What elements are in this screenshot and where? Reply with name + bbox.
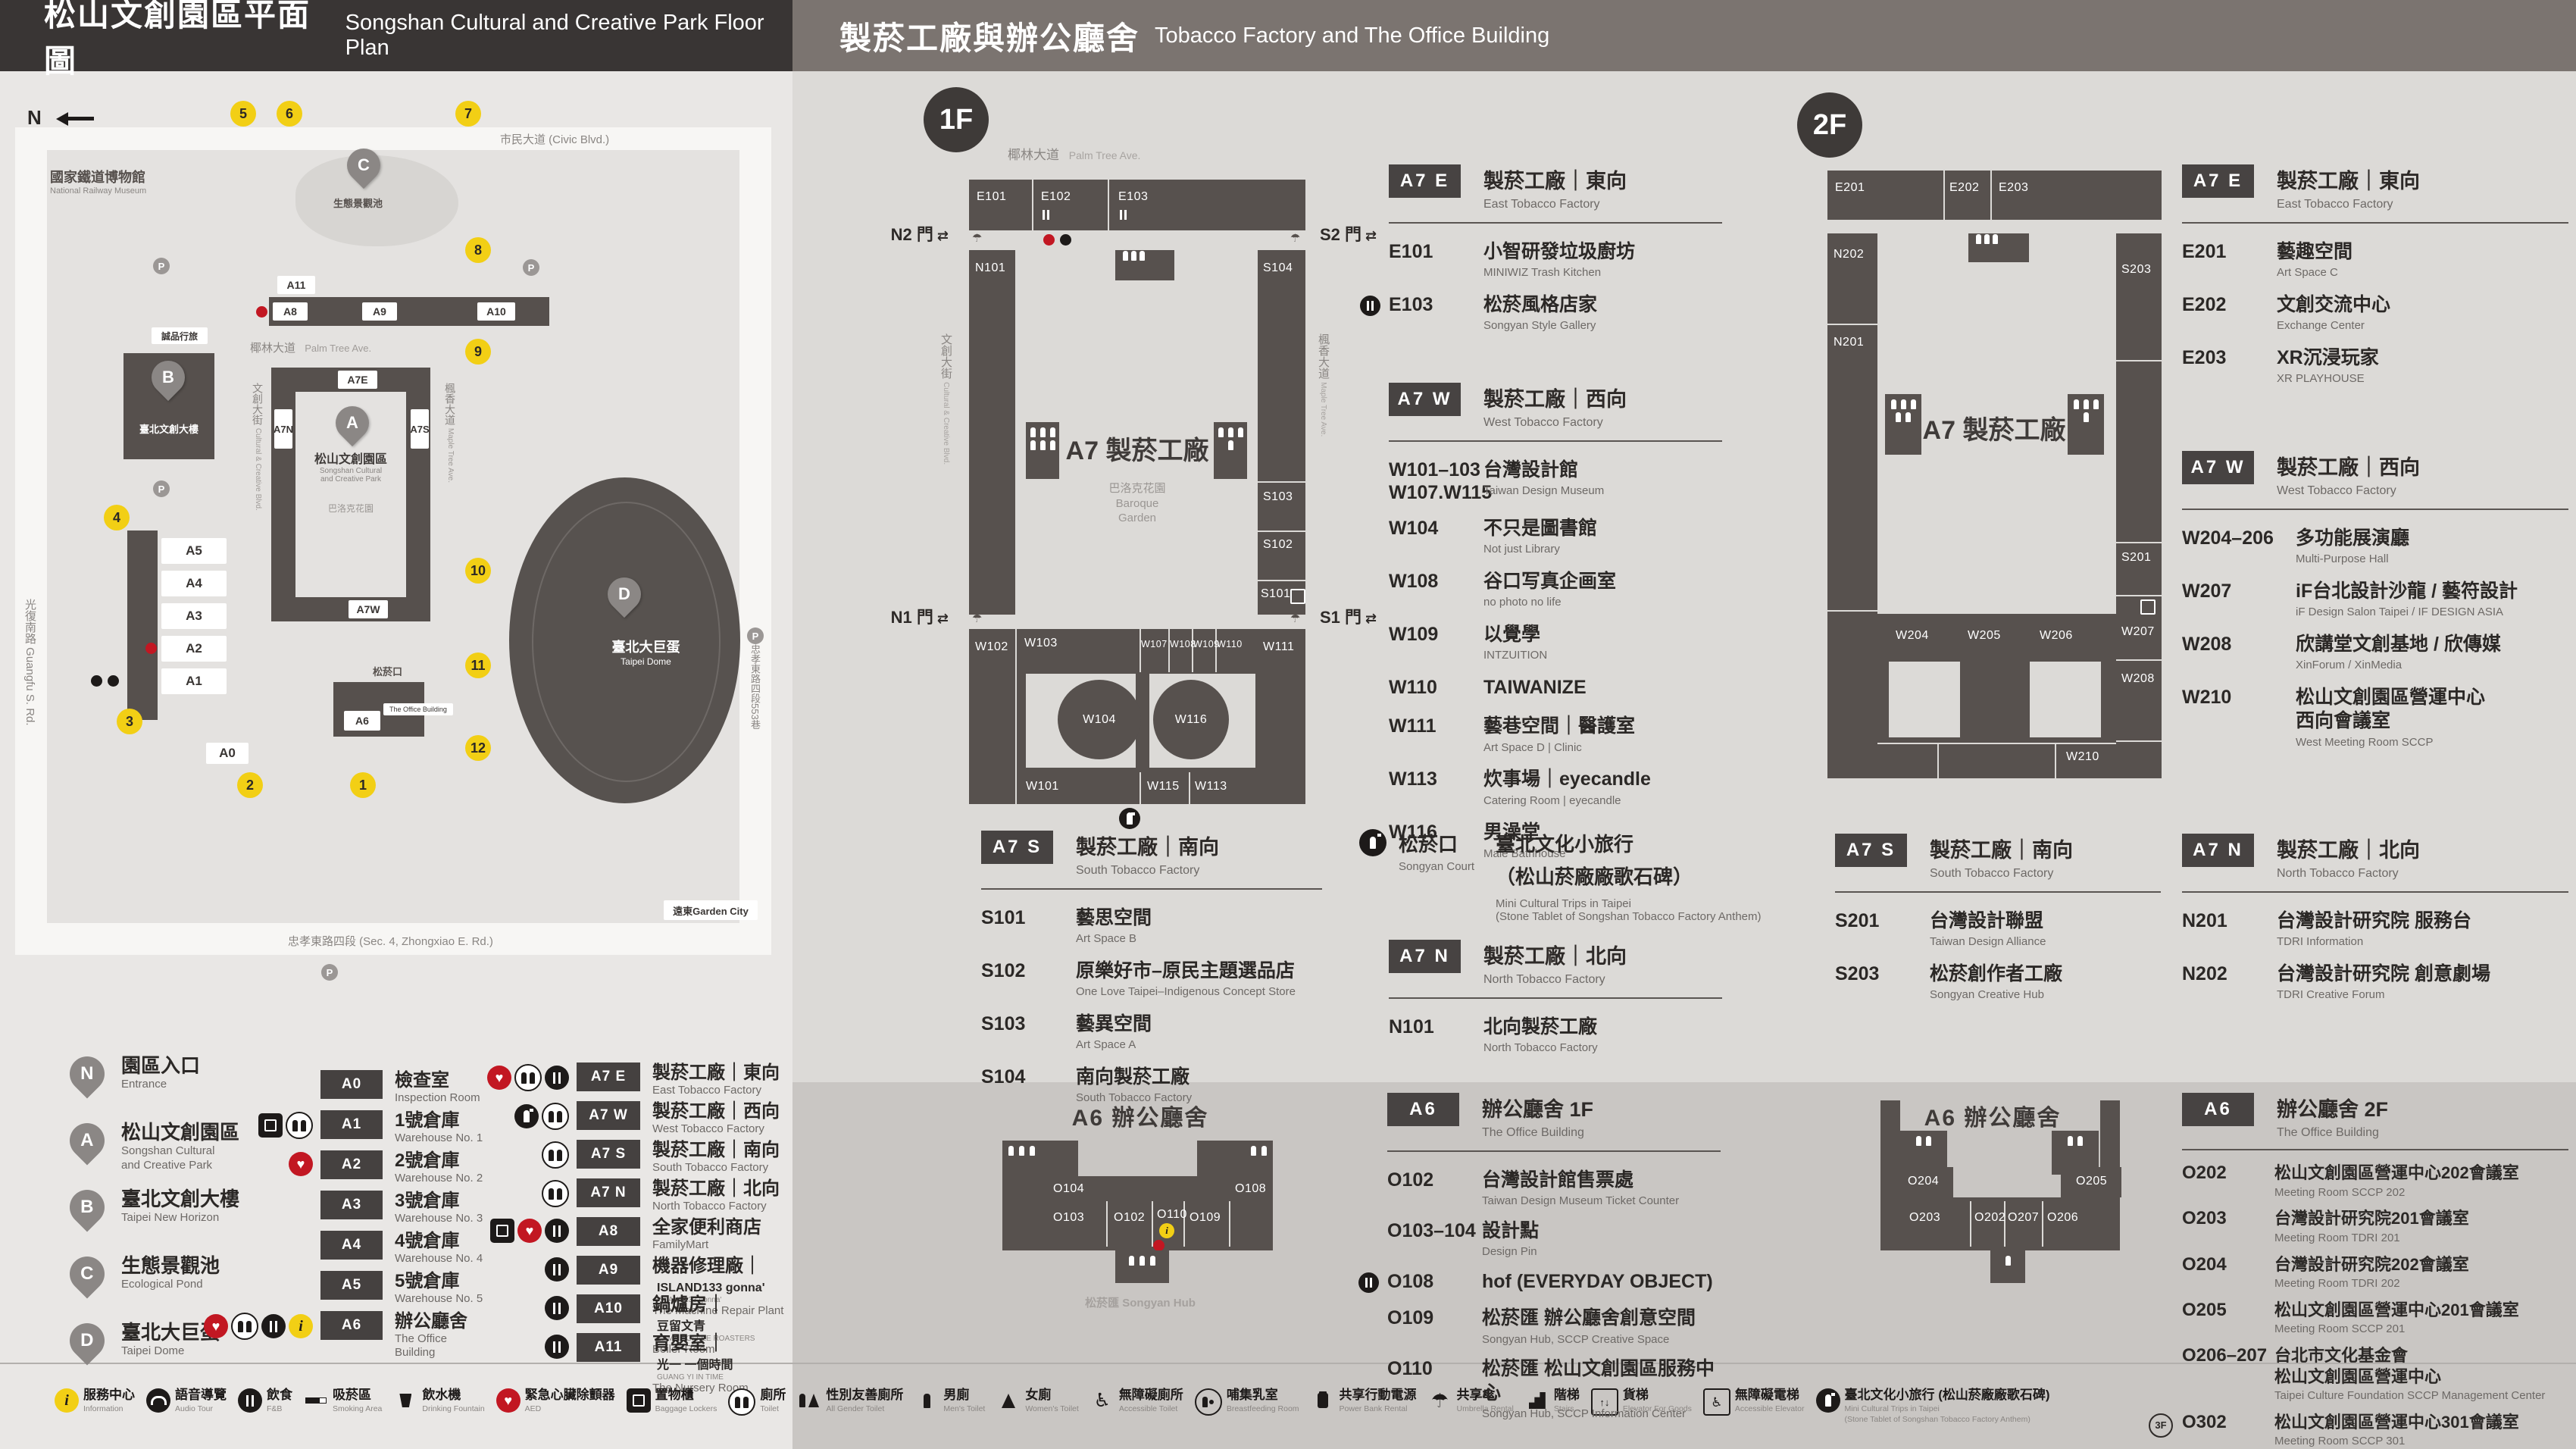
room-en: Songyan Creative Hub	[1930, 988, 2062, 1003]
room-zh: 台北市文化基金會	[2274, 1345, 2545, 1366]
toilet-icon	[728, 1388, 755, 1416]
strip-item: 廁所 Toilet	[728, 1388, 786, 1416]
strip-item: ♥ 緊急心臟除顫器 AED	[496, 1388, 615, 1415]
umbrella-icon	[972, 612, 982, 625]
plan1f-divider	[1140, 772, 1141, 804]
directory-row: S201 台灣設計聯盟Taiwan Design Alliance	[1835, 909, 2161, 950]
fnb-icon	[1358, 1272, 1379, 1293]
building-text: 1號倉庫 Warehouse No. 1	[395, 1110, 483, 1145]
room-code: W207	[2182, 580, 2296, 620]
fnb-icon	[261, 1314, 286, 1338]
room-code: N101	[1389, 1016, 1483, 1056]
street-cultural-zh: 文創大街	[252, 383, 264, 425]
room-code: O202	[2182, 1163, 2274, 1200]
building-code-badge: A3	[320, 1191, 383, 1219]
room-zh: 松山文創園區營運中心301會議室	[2274, 1412, 2519, 1433]
room-label: S103	[1263, 490, 1293, 504]
room-zh: 北向製菸工廠	[1483, 1016, 1598, 1039]
building-text: 2號倉庫 Warehouse No. 2	[395, 1150, 483, 1185]
section-divider	[1389, 997, 1722, 999]
building-en: The Office Building	[395, 1332, 487, 1361]
legend-building-row: A11 育嬰室｜光一 一個時間GUANG YI IN TIME The Nurs…	[484, 1333, 802, 1372]
court-title-zh2: （松山菸廠廠歌石碑）	[1496, 862, 1762, 890]
strip-text: 女廁 Women's Toilet	[1025, 1388, 1078, 1415]
room-zh: 南向製菸工廠	[1076, 1066, 1192, 1089]
building-en: Warehouse No. 3	[395, 1212, 483, 1226]
legend-building-row: ♥ A8 全家便利商店 FamilyMart	[484, 1217, 802, 1256]
section-title-en: The Office Building	[2277, 1126, 2388, 1140]
directory-row: O109 松菸匯 辦公廳舍創意空間Songyan Hub, SCCP Creat…	[1387, 1307, 1721, 1347]
building-zh-line: 製菸工廠｜北向	[652, 1178, 780, 1200]
strip-item: 哺集乳室 Breastfeeding Room	[1195, 1388, 1299, 1416]
baroque-en2: Garden	[1068, 511, 1207, 526]
room-code: W210	[2182, 686, 2296, 750]
directory-row: W108 谷口写真企画室no photo no life	[1389, 570, 1722, 610]
entrance-number-1: 1	[350, 772, 376, 798]
a6-2f-divider	[2042, 1201, 2043, 1247]
directory-row: S101 藝思空間Art Space B	[981, 906, 1322, 947]
room-zh: 松菸風格店家	[1483, 293, 1597, 317]
room-zh: 松菸匯 辦公廳舍創意空間	[1482, 1307, 1696, 1330]
directory-row: O103–104 設計點Design Pin	[1387, 1219, 1721, 1260]
room-text: 松菸風格店家Songyan Style Gallery	[1483, 293, 1597, 333]
section-badge: A7 W	[2182, 451, 2254, 484]
room-label: O202	[1974, 1211, 2005, 1225]
building-code-badge: A6	[320, 1311, 383, 1340]
brand-sub: GUANG YI IN TIME	[657, 1374, 733, 1382]
toilet-icon	[1261, 1146, 1267, 1156]
room-en: Design Pin	[1482, 1245, 1539, 1260]
strip-icon: ♿	[1090, 1388, 1114, 1413]
room-text: XR沉浸玩家XR PLAYHOUSE	[2277, 346, 2379, 387]
parking-icon: P	[747, 627, 764, 644]
a6-2f-divider	[1970, 1201, 1971, 1247]
room-label: W208	[2121, 672, 2155, 686]
road-lane553	[739, 150, 771, 923]
room-text: 北向製菸工廠North Tobacco Factory	[1483, 1016, 1598, 1056]
room-label: O110	[1157, 1208, 1187, 1222]
floor-badge-1f: 1F	[924, 87, 989, 152]
building-text: 4號倉庫 Warehouse No. 4	[395, 1231, 483, 1266]
room-en: Catering Room | eyecandle	[1483, 794, 1651, 809]
entrance-number-8: 8	[465, 237, 491, 263]
men-icon	[914, 1388, 939, 1413]
gate-s2: S2 門	[1320, 221, 1377, 246]
directory-row: E103 松菸風格店家Songyan Style Gallery	[1389, 293, 1722, 333]
strip-en: Smoking Area	[333, 1404, 382, 1414]
building-code-badge: A7 S	[577, 1140, 640, 1169]
men-toilet-icon	[1976, 234, 1981, 244]
facility-icons	[484, 1296, 569, 1320]
building-zh: 1號倉庫	[395, 1110, 483, 1131]
toilet-icon	[2084, 399, 2089, 409]
directory-row: E101 小智研發垃圾廚坊MINIWIZ Trash Kitchen	[1389, 240, 1722, 280]
baroque-garden-label: 巴洛克花園	[302, 502, 400, 515]
room-zh: 台灣設計研究院 服務台	[2277, 909, 2471, 933]
plan2f-divider	[2116, 659, 2162, 661]
section-title-en: West Tobacco Factory	[2277, 484, 2420, 498]
building-text: 5號倉庫 Warehouse No. 5	[395, 1271, 483, 1306]
a6-1f-divider	[1229, 1201, 1230, 1247]
room-label: O108	[1235, 1182, 1266, 1196]
room-text: iF台北設計沙龍 / 藝符設計iF Design Salon Taipei / …	[2296, 580, 2518, 620]
building-zh-line: 全家便利商店	[652, 1217, 761, 1238]
stairs-icon	[1984, 234, 1990, 244]
room-label: W108	[1170, 639, 1196, 649]
strip-item: 語音導覽 Audio Tour	[146, 1388, 227, 1415]
plan1f-east-wing	[969, 180, 1305, 230]
room-code: O206–207	[2182, 1345, 2274, 1404]
room-code: O108	[1387, 1270, 1482, 1296]
directory-row: W210 松山文創園區營運中心西向會議室West Meeting Room SC…	[2182, 686, 2568, 750]
strip-zh: 語音導覽	[175, 1388, 227, 1403]
room-en: Meeting Room TDRI 202	[2274, 1277, 2469, 1291]
room-en: Meeting Room SCCP 201	[2274, 1322, 2519, 1337]
building-en: Inspection Room	[395, 1091, 480, 1106]
strip-text: 無障礙電梯 Accessible Elevator	[1735, 1388, 1805, 1415]
section-1f-a7n: A7 N 製菸工廠｜北向North Tobacco Factory N101 北…	[1389, 940, 1722, 1069]
strip-icon	[238, 1388, 262, 1413]
room-zh: 藝思空間	[1076, 906, 1152, 930]
strip-item: i 服務中心 Information	[55, 1388, 135, 1415]
court-en: Songyan Court	[1399, 860, 1483, 873]
compass-label: N	[27, 106, 42, 130]
room-zh: iF台北設計沙龍 / 藝符設計	[2296, 580, 2518, 603]
a6-2f-plan-title: A6 辦公廳舍	[1894, 1099, 2091, 1132]
room-code: W108	[1389, 570, 1483, 610]
compass-arrow-shaft	[68, 117, 94, 120]
legend-building-row: A7 S 製菸工廠｜南向 South Tobacco Factory	[484, 1140, 802, 1178]
a6-1f-plan-title: A6 辦公廳舍	[1038, 1099, 1243, 1132]
room-en: TDRI Information	[2277, 935, 2471, 950]
audio-icon	[146, 1388, 170, 1413]
room-zh: 多功能展演廳	[2296, 527, 2409, 550]
room-label: S201	[2121, 551, 2151, 565]
section-title-en: North Tobacco Factory	[1483, 973, 1627, 987]
room-en: XR PLAYHOUSE	[2277, 372, 2379, 387]
directory-row: O108 hof (EVERYDAY OBJECT)	[1387, 1270, 1721, 1296]
room-label: O207	[2008, 1211, 2039, 1225]
umbrella-icon	[972, 231, 982, 245]
room-code: W110	[1389, 676, 1483, 702]
men-toilet-icon	[1123, 251, 1128, 261]
mini-icon	[514, 1104, 539, 1128]
plan1f-palm-zh: 椰林大道	[1008, 148, 1059, 162]
room-code: E202	[2182, 293, 2277, 333]
room-label: O204	[1908, 1175, 1939, 1188]
section-2f-a7n: A7 N 製菸工廠｜北向North Tobacco Factory N201 台…	[2182, 834, 2568, 1016]
room-code: W204–206	[2182, 527, 2296, 567]
plan1f-divider	[1258, 530, 1305, 532]
room-zh2: 松山文創園區營運中心	[2274, 1366, 2545, 1388]
entrance-number-7: 7	[455, 101, 481, 127]
facility-icons: ♥	[199, 1152, 313, 1176]
building-zh: 5號倉庫	[395, 1271, 483, 1292]
place-pin-icon: A	[62, 1116, 111, 1165]
fnb-icon	[1043, 210, 1045, 220]
right-header-title-zh: 製菸工廠與辦公廳舍	[839, 13, 1140, 59]
strip-en2: (Stone Tablet of Songshan Tobacco Factor…	[1845, 1415, 2050, 1425]
room-text: 松山文創園區營運中心201會議室Meeting Room SCCP 201	[2274, 1300, 2519, 1337]
section-1f-a6: A6 辦公廳舍 1FThe Office Building O102 台灣設計館…	[1387, 1093, 1721, 1432]
map-chip-a2: A2	[161, 636, 227, 662]
strip-item: 女廁 Women's Toilet	[996, 1388, 1078, 1415]
plan1f-title: A7 製菸工廠	[1037, 430, 1237, 467]
street-maple-en: Maple Tree Ave.	[446, 428, 455, 483]
court-title-en1: Mini Cultural Trips in Taipei	[1496, 897, 1762, 910]
room-text: hof (EVERYDAY OBJECT)	[1482, 1270, 1713, 1296]
building-text: 製菸工廠｜西向 West Tobacco Factory	[652, 1101, 780, 1136]
directory-row: E202 文創交流中心Exchange Center	[2182, 293, 2568, 333]
strip-zh: 臺北文化小旅行 (松山菸廠廠歌石碑)	[1845, 1388, 2050, 1403]
section-title-zh: 製菸工廠｜東向	[2277, 164, 2420, 194]
legend-building-row: A3 3號倉庫 Warehouse No. 3	[199, 1191, 487, 1231]
building-zh: 檢查室	[395, 1070, 480, 1091]
court-detail: 臺北文化小旅行 （松山菸廠廠歌石碑） Mini Cultural Trips i…	[1496, 829, 1762, 923]
aed-icon: ♥	[289, 1152, 313, 1176]
room-zh: 藝趣空間	[2277, 240, 2352, 264]
plan2f-court-w204	[1889, 662, 1960, 737]
room-en: Meeting Room SCCP 301	[2274, 1435, 2519, 1449]
section-badge: A7 E	[1389, 164, 1461, 198]
floor-3f-badge: 3F	[2149, 1413, 2173, 1438]
building-zh: 育嬰室	[652, 1333, 707, 1354]
fnb-icon	[545, 1296, 569, 1320]
right-header-title-en: Tobacco Factory and The Office Building	[1155, 23, 1549, 49]
plan1f-baroque: 巴洛克花園 Baroque Garden	[1068, 481, 1207, 526]
plan2f-divider	[1990, 171, 1992, 220]
plan1f-street-cultural: 文創大街 Cultural & Creative Blvd.	[938, 333, 954, 465]
floor-plan-poster: 松山文創園區平面圖 Songshan Cultural and Creative…	[0, 0, 2576, 1449]
map-chip-a6: A6	[344, 711, 380, 731]
directory-row: N101 北向製菸工廠North Tobacco Factory	[1389, 1016, 1722, 1056]
section-divider	[981, 888, 1322, 890]
directory-row: W207 iF台北設計沙龍 / 藝符設計iF Design Salon Taip…	[2182, 580, 2568, 620]
map-chip-a1: A1	[161, 668, 227, 694]
room-text: 松菸匯 辦公廳舍創意空間Songyan Hub, SCCP Creative S…	[1482, 1307, 1696, 1347]
road-guangfu	[15, 150, 47, 923]
audio-tour-icon	[2093, 399, 2099, 409]
left-header: 松山文創園區平面圖 Songshan Cultural and Creative…	[0, 0, 792, 71]
plan1f-toilet-notch	[1115, 250, 1174, 280]
strip-zh: 緊急心臟除顫器	[525, 1388, 615, 1403]
room-zh: 松山文創園區營運中心	[2296, 686, 2485, 709]
street-palm: 椰林大道 Palm Tree Ave.	[250, 340, 371, 355]
room-en: Taiwan Design Museum	[1483, 484, 1604, 499]
room-zh: 設計點	[1482, 1219, 1539, 1243]
locker-icon	[1030, 427, 1036, 437]
section-title-en: South Tobacco Factory	[1930, 867, 2073, 881]
map-chip-a9: A9	[362, 302, 397, 321]
fnb-icon	[1120, 210, 1122, 220]
strip-text: 服務中心 Information	[83, 1388, 135, 1415]
section-divider	[2182, 891, 2568, 893]
dome-label: 臺北大巨蛋 Taipei Dome	[564, 637, 727, 667]
room-text: 台灣設計研究院 創意劇場TDRI Creative Forum	[2277, 962, 2490, 1003]
room-en: iF Design Salon Taipei / IF DESIGN ASIA	[2296, 606, 2518, 620]
aed-icon	[1043, 234, 1055, 246]
section-title-en: The Office Building	[1482, 1126, 1593, 1140]
allgender-icon	[797, 1388, 821, 1413]
strip-en: F&B	[267, 1404, 292, 1414]
directory-row: O203 台灣設計研究院201會議室Meeting Room TDRI 201	[2182, 1208, 2568, 1245]
section-title-en: North Tobacco Factory	[2277, 867, 2420, 881]
gate-s1: S1 門	[1320, 604, 1377, 628]
map-chip-a4: A4	[161, 571, 227, 596]
stairs-icon	[1891, 399, 1896, 409]
toilet-icon	[1030, 440, 1036, 450]
strip-zh: 廁所	[760, 1388, 786, 1403]
room-code: S102	[981, 959, 1076, 1000]
breastfeeding-icon	[1195, 1388, 1222, 1416]
stairs-icon	[2074, 399, 2079, 409]
room-code: S101	[981, 906, 1076, 947]
building-en: North Tobacco Factory	[652, 1200, 780, 1214]
room-zh: 台灣設計館售票處	[1482, 1169, 1679, 1192]
directory-row: O205 松山文創園區營運中心201會議室Meeting Room SCCP 2…	[2182, 1300, 2568, 1337]
plan2f-divider	[2116, 542, 2162, 543]
strip-zh: 無障礙電梯	[1735, 1388, 1805, 1403]
parking-icon: P	[153, 480, 170, 497]
strip-icon	[1311, 1388, 1335, 1413]
room-text: 欣講堂文創基地 / 欣傳媒XinForum / XinMedia	[2296, 633, 2501, 673]
building-code-badge: A2	[320, 1150, 383, 1179]
directory-row: S102 原樂好市–原民主題選品店One Love Taipei–Indigen…	[981, 959, 1322, 1000]
map-chip-a3: A3	[161, 603, 227, 629]
room-en: Multi-Purpose Hall	[2296, 552, 2409, 567]
women-toilet-icon	[1140, 251, 1145, 261]
plan2f-divider	[1827, 324, 1877, 325]
room-text: 松山文創園區營運中心202會議室Meeting Room SCCP 202	[2274, 1163, 2519, 1200]
new-horizon-label: 臺北文創大樓	[129, 421, 209, 436]
audio-tour-icon	[1901, 399, 1906, 409]
entrance-number-6: 6	[277, 101, 302, 127]
locker-icon	[1290, 589, 1305, 604]
gate-n1: N1 門	[850, 604, 949, 628]
legend-building-row: A0 檢查室 Inspection Room	[199, 1070, 487, 1110]
directory-row: W109 以覺學INTZUITION	[1389, 623, 1722, 663]
legend-building-row: ♥ A2 2號倉庫 Warehouse No. 2	[199, 1150, 487, 1191]
directory-row: W113 炊事場｜eyecandleCatering Room | eyecan…	[1389, 768, 1722, 808]
directory-row: O206–207 台北市文化基金會松山文創園區營運中心Taipei Cultur…	[2182, 1345, 2568, 1404]
building-en: Warehouse No. 4	[395, 1252, 483, 1266]
building-text: 檢查室 Inspection Room	[395, 1070, 480, 1105]
plan1f-cultural-zh: 文創大街	[939, 333, 952, 379]
left-header-title-en: Songshan Cultural and Creative Park Floo…	[345, 11, 792, 61]
plan2f-divider	[1937, 743, 1939, 778]
strip-zh: 服務中心	[83, 1388, 135, 1403]
powerbank-icon	[1311, 1388, 1335, 1413]
room-en: One Love Taipei–Indigenous Concept Store	[1076, 985, 1296, 1000]
building-en: Warehouse No. 5	[395, 1292, 483, 1307]
parking-icon: P	[321, 964, 338, 981]
room-label: S101	[1261, 587, 1290, 601]
aed-icon: ♥	[487, 1066, 511, 1090]
room-label: W107	[1141, 639, 1168, 649]
parking-icon: P	[523, 259, 539, 276]
directory-row: W110 TAIWANIZE	[1389, 676, 1722, 702]
strip-icon	[304, 1388, 328, 1413]
room-code: W104	[1389, 517, 1483, 557]
facility-icons	[484, 1335, 569, 1359]
stairs-icon	[1030, 1146, 1035, 1156]
strip-icon	[1195, 1388, 1222, 1416]
section-title-zh: 製菸工廠｜北向	[1483, 940, 1627, 969]
men-toilet-icon	[1926, 1136, 1931, 1146]
room-code: E201	[2182, 240, 2277, 280]
building-code-badge: A1	[320, 1110, 383, 1139]
street-palm-zh: 椰林大道	[250, 342, 295, 355]
strip-en: Audio Tour	[175, 1404, 227, 1414]
plan1f-w116-hall: W116	[1153, 680, 1229, 759]
section-badge: A7 E	[2182, 164, 2254, 198]
toilet-icon	[1911, 399, 1916, 409]
section-2f-a7s: A7 S 製菸工廠｜南向South Tobacco Factory S201 台…	[1835, 834, 2161, 1016]
room-en: Art Space D | Clinic	[1483, 741, 1635, 756]
plan1f-divider	[1215, 629, 1217, 672]
songyan-court-block: 松菸口 Songyan Court 臺北文化小旅行 （松山菸廠廠歌石碑） Min…	[1359, 829, 1784, 923]
directory-row: 3F O302 松山文創園區營運中心301會議室Meeting Room SCC…	[2182, 1412, 2568, 1449]
plan2f-divider	[2116, 360, 2162, 361]
room-en: no photo no life	[1483, 596, 1616, 610]
a6-2f-stem	[1990, 1250, 2025, 1283]
room-code: E101	[1389, 240, 1483, 280]
section-badge: A7 N	[1389, 940, 1461, 973]
building-zh: 鍋爐房	[652, 1294, 707, 1315]
room-label: S203	[2121, 263, 2151, 277]
railway-museum-zh: 國家鐵道博物館	[50, 167, 164, 186]
room-label: E202	[1949, 181, 1979, 195]
fnb-icon	[545, 1335, 569, 1359]
building-en: Warehouse No. 2	[395, 1172, 483, 1186]
directory-row: E201 藝趣空間Art Space C	[2182, 240, 2568, 280]
room-zh: XR沉浸玩家	[2277, 346, 2379, 370]
section-title-zh: 製菸工廠｜北向	[2277, 834, 2420, 863]
room-text: 台灣設計聯盟Taiwan Design Alliance	[1930, 909, 2046, 950]
legend-building-row: A7 W 製菸工廠｜西向 West Tobacco Factory	[484, 1101, 802, 1140]
plan1f-maple-zh: 楓香大道	[1317, 333, 1330, 379]
building-zh-line: 製菸工廠｜南向	[652, 1140, 780, 1161]
aed-icon: ♥	[517, 1219, 542, 1243]
strip-text: 廁所 Toilet	[760, 1388, 786, 1415]
fnb-icon	[1360, 296, 1380, 316]
locker-icon	[627, 1388, 651, 1413]
dome-label-zh: 臺北大巨蛋	[564, 637, 727, 656]
right-header: 製菸工廠與辦公廳舍 Tobacco Factory and The Office…	[792, 0, 2576, 71]
toilet-icon	[542, 1141, 569, 1169]
room-text: 台灣設計研究院 服務台TDRI Information	[2277, 909, 2471, 950]
room-zh: 台灣設計研究院201會議室	[2274, 1208, 2469, 1229]
room-label: E101	[977, 190, 1006, 204]
room-code: O103–104	[1387, 1219, 1482, 1260]
section-badge: A7 N	[2182, 834, 2254, 867]
room-zh: 台灣設計聯盟	[1930, 909, 2046, 933]
strip-text: 吸菸區 Smoking Area	[333, 1388, 382, 1415]
strip-zh: 男廁	[943, 1388, 985, 1403]
building-zh-line: 育嬰室｜光一 一個時間GUANG YI IN TIME	[652, 1333, 802, 1382]
legend-building-row: A10 鍋爐房｜豆留文青CAMA COFFEE ROASTERS Boiler …	[484, 1294, 802, 1333]
umbrella-icon	[1290, 612, 1300, 625]
strip-item: 男廁 Men's Toilet	[914, 1388, 985, 1415]
room-text: 藝思空間Art Space B	[1076, 906, 1152, 947]
facility-icons	[484, 1257, 569, 1282]
compass-arrow-icon	[56, 112, 68, 126]
room-label: N201	[1834, 336, 1864, 349]
plan1f-street-maple: 楓香大道 Maple Tree Ave.	[1315, 333, 1331, 437]
directory-row: O204 台灣設計研究院202會議室Meeting Room TDRI 202	[2182, 1254, 2568, 1291]
directory-row: O110 松菸匯 松山文創園區服務中心Songyan Hub, SCCP Inf…	[1387, 1357, 1721, 1421]
room-text: 多功能展演廳Multi-Purpose Hall	[2296, 527, 2409, 567]
